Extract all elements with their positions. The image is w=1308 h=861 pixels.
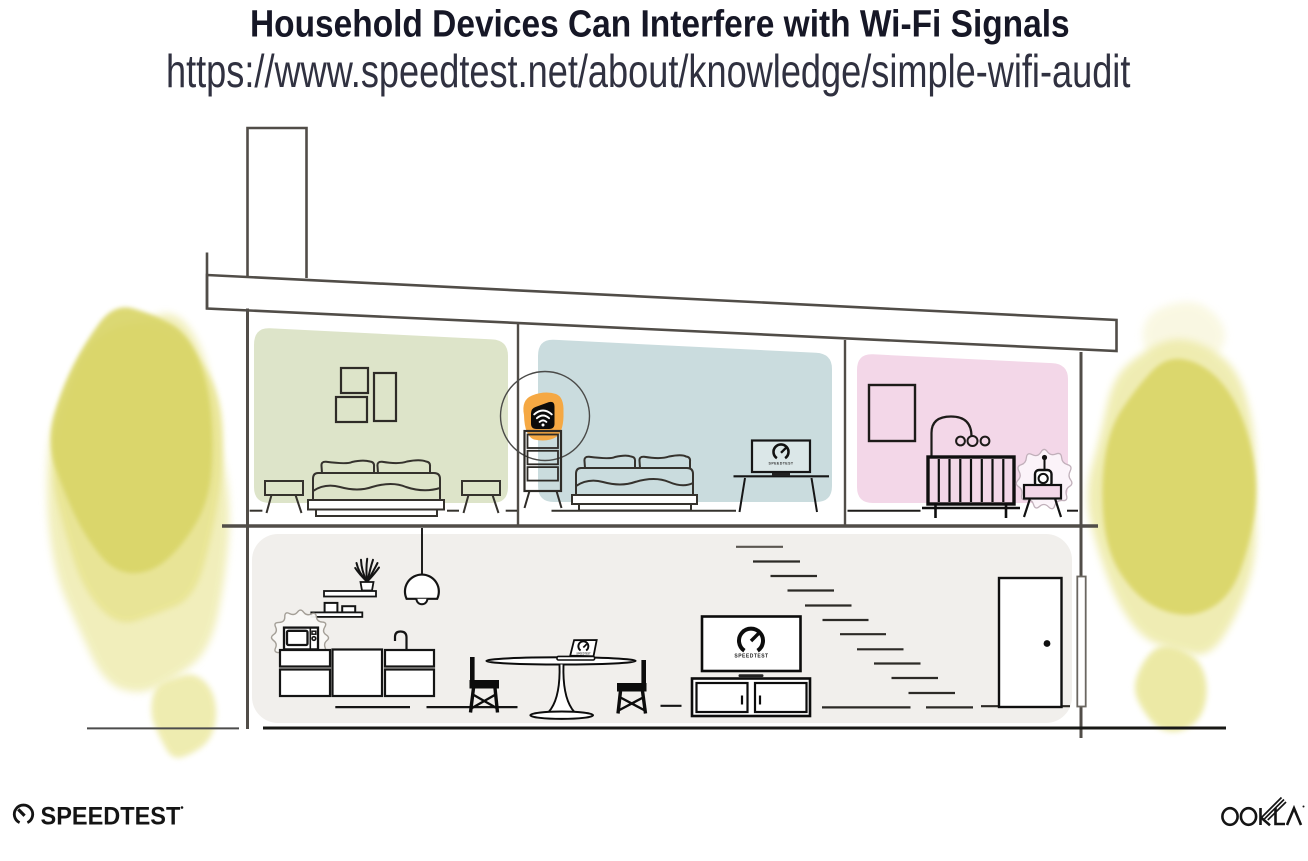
- svg-text:https://www.speedtest.net/abou: https://www.speedtest.net/about/knowledg…: [166, 46, 1131, 97]
- svg-text:SPEEDTEST: SPEEDTEST: [734, 653, 768, 659]
- svg-text:SPEEDTEST: SPEEDTEST: [769, 462, 794, 466]
- svg-text:Household Devices Can Interfer: Household Devices Can Interfere with Wi-…: [250, 1, 1070, 45]
- svg-text:SPEEDTEST: SPEEDTEST: [576, 653, 591, 656]
- svg-text:SPEEDTEST: SPEEDTEST: [41, 803, 181, 831]
